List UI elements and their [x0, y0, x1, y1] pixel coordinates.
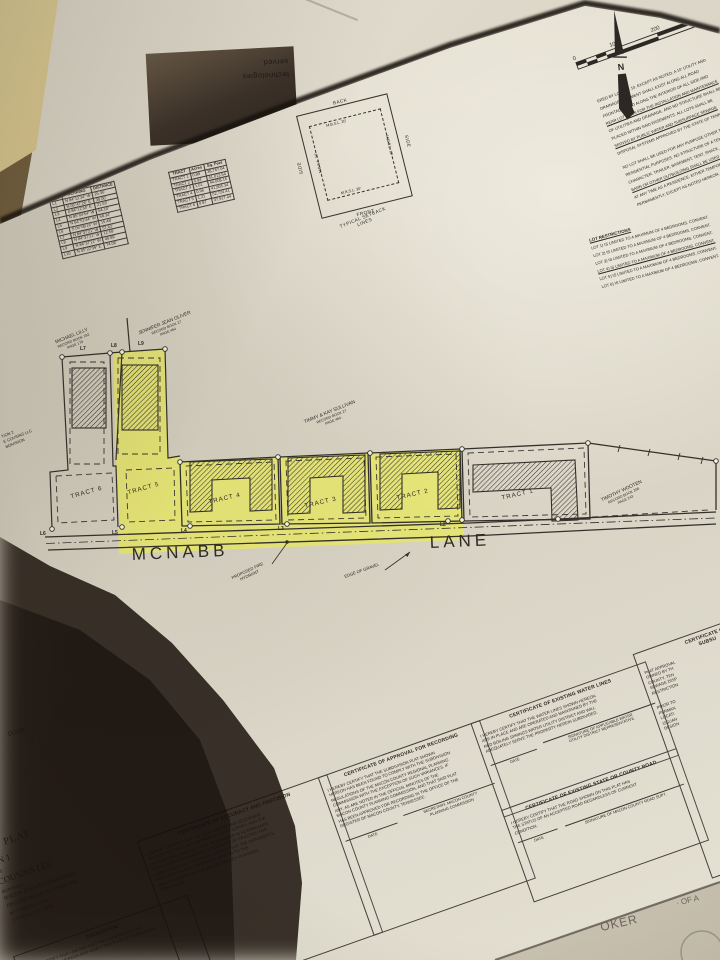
line-label: L7: [80, 346, 86, 352]
photo-of-plat-document: technologies served. LINE BEARING DISTAN…: [0, 0, 720, 960]
neighbor-left-label: TION 2 E COUSINS LLC BDIVISION: [1, 423, 35, 449]
tract-label: TRACT 6: [70, 485, 103, 501]
fence-ticks: [618, 445, 703, 464]
signature-date: DATE: [345, 822, 399, 847]
line-label: L4: [181, 528, 187, 534]
setback-back-label: BACK: [332, 97, 347, 105]
svg-text:EDGE OF GRAVEL: EDGE OF GRAVEL: [344, 561, 381, 578]
lot-restrictions-text: LOT RESTRICTIONS LOT 1) IS LIMITED TO A …: [588, 197, 720, 291]
setback-outer-box: BACK FRONT SIDE SIDE M.B.S.L. 20' M.B.S.…: [296, 93, 413, 219]
line-label: L8: [111, 343, 117, 349]
line-label: L6: [40, 531, 46, 537]
scale-tick: 0: [572, 56, 577, 63]
line-label: L9: [138, 341, 144, 347]
signature-date: DATE: [491, 749, 539, 772]
line-label: L5: [112, 530, 118, 536]
line-label: L3: [278, 526, 284, 532]
annotation-edge-of-gravel: EDGE OF GRAVEL: [344, 552, 410, 579]
setback-diagram: BACK FRONT SIDE SIDE M.B.S.L. 20' M.B.S.…: [296, 85, 458, 262]
line-label: L2: [440, 522, 446, 528]
setback-side-label: SIDE: [404, 134, 412, 148]
setback-side-label: SIDE: [296, 161, 304, 175]
road-name-mcnabb: MCNABB: [131, 541, 228, 564]
road-name-lane: LANE: [429, 530, 490, 552]
tract-area-table: TRACT Acres Sq. Feet TRACT 10.8938,767.0…: [168, 159, 234, 213]
